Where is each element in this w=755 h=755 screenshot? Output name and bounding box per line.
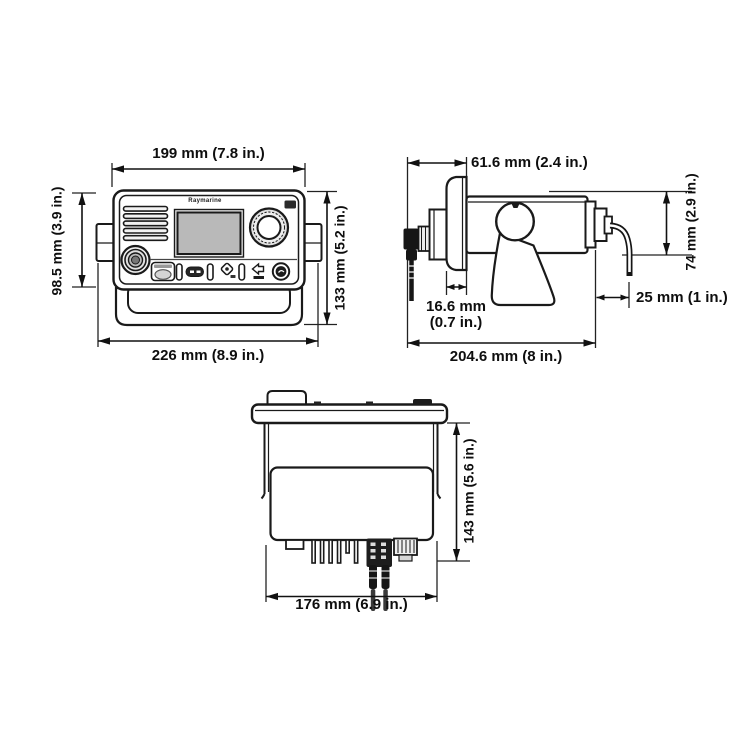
dim-rear-mount-depth: 143 mm (5.6 in.) <box>462 438 477 543</box>
rear-cable <box>610 226 630 277</box>
top-knob-tab <box>268 391 307 405</box>
ptt-button <box>273 263 289 279</box>
display-screen <box>175 210 244 258</box>
bottom-tab <box>286 540 304 549</box>
rotary-knob <box>250 209 288 247</box>
accessory-connector <box>394 539 417 562</box>
front-flange <box>447 177 467 270</box>
dim-front-height-right: 133 mm (5.2 in.) <box>333 205 348 310</box>
dim-front-height-left: 98.5 mm (3.9 in.) <box>50 187 65 296</box>
power-connector-block <box>367 539 393 568</box>
dim-side-front-depth: 61.6 mm (2.4 in.) <box>471 155 588 171</box>
dimension-diagram: Raymarine 199 mm (7.8 in.) 98.5 mm (3.9 … <box>0 0 755 755</box>
heatsink-pins <box>312 540 358 563</box>
mic-holder-clip <box>430 210 448 260</box>
dim-side-flange-depth-in: (0.7 in.) <box>426 315 486 331</box>
front-device <box>97 191 322 326</box>
dim-side-cable-clearance: 25 mm (1 in.) <box>636 290 728 306</box>
dim-rear-cutout-width: 176 mm (6.9 in.) <box>295 597 408 613</box>
dim-front-width-bottom: 226 mm (8.9 in.) <box>152 348 265 364</box>
bracket-knob <box>496 203 534 241</box>
dim-front-width-top: 199 mm (7.8 in.) <box>152 146 265 162</box>
front-view <box>72 163 337 347</box>
rear-device <box>252 391 447 611</box>
logo-badge <box>285 201 297 209</box>
lower-case <box>271 468 434 541</box>
dim-side-flange-depth: 16.6 mm (0.7 in.) <box>426 299 486 331</box>
channel-button <box>186 267 204 277</box>
rear-connector-stack <box>586 202 613 248</box>
dim-side-rear-height: 74 mm (2.9 in.) <box>684 173 699 270</box>
mic-connector <box>122 246 150 274</box>
speaker-grille <box>124 207 168 241</box>
line-art <box>0 0 755 755</box>
rear-view <box>252 391 470 611</box>
dim-side-flange-depth-mm: 16.6 mm <box>426 299 486 315</box>
distress-button <box>152 263 175 281</box>
brand-label: Raymarine <box>188 198 221 204</box>
dim-side-total-depth: 204.6 mm (8 in.) <box>450 349 563 365</box>
